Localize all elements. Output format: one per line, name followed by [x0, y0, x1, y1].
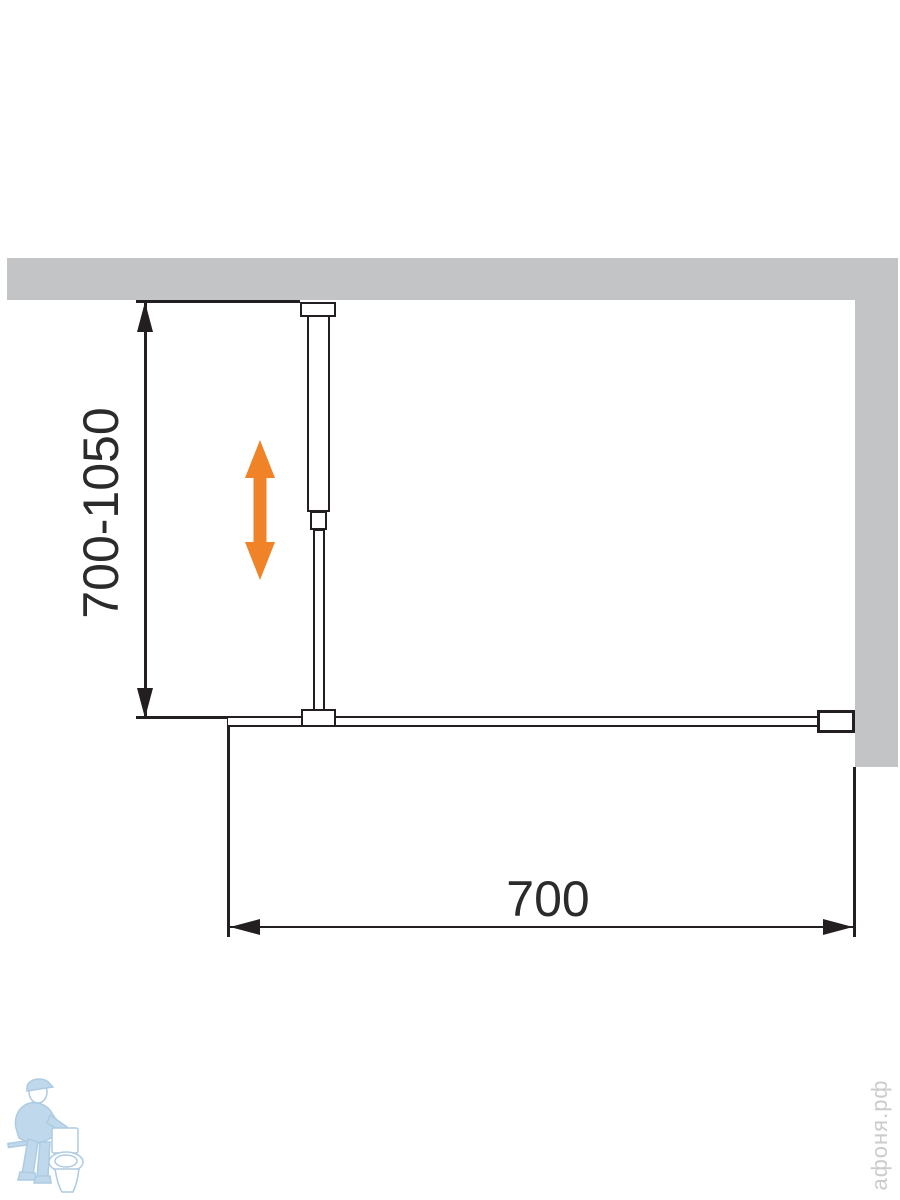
height-adjust-arrow-icon [245, 440, 275, 580]
support-bar-inner-rod [313, 529, 325, 712]
side-wall [855, 300, 898, 767]
dimension-arrow-down-icon [137, 688, 153, 718]
dim-extension-line-top [136, 300, 300, 303]
wall-bracket [817, 710, 855, 733]
height-dimension-label: 700-1050 [76, 407, 126, 618]
dim-extension-line-right [853, 767, 856, 937]
dimension-arrow-left-icon [230, 919, 260, 935]
dim-extension-line-left [227, 718, 230, 937]
support-bar-ceiling-bracket [300, 302, 336, 317]
back-wall [7, 258, 898, 300]
watermark-site-text: афоня.рф [869, 1079, 891, 1190]
dimension-arrow-right-icon [823, 919, 853, 935]
width-dimension-label: 700 [506, 874, 589, 924]
support-bar-outer-tube [307, 315, 330, 512]
support-bar-collar [310, 511, 327, 530]
dimension-arrow-up-icon [137, 302, 153, 332]
dim-line-vertical [144, 302, 147, 718]
plumber-logo-icon [5, 1065, 135, 1200]
support-bar-glass-connector [301, 709, 336, 727]
